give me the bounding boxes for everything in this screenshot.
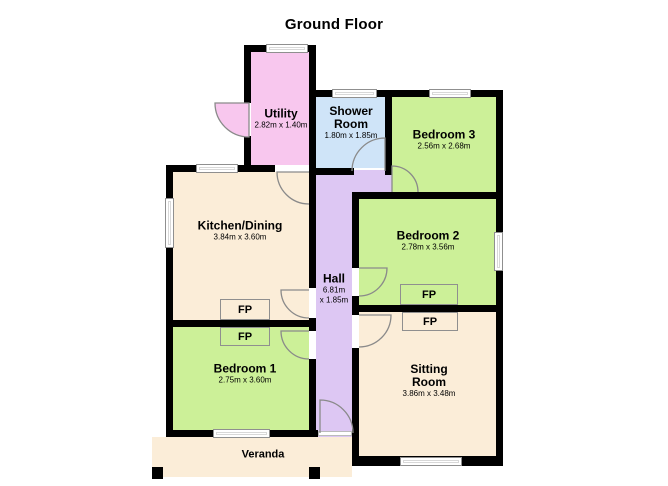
bedroom3-label: Bedroom 3 2.56m x 2.68m xyxy=(413,129,476,152)
shower-room-label: Shower Room 1.80m x 1.85m xyxy=(325,105,378,141)
wall xyxy=(352,305,503,312)
fireplace-bedroom2: FP xyxy=(400,284,458,305)
room-name: Room xyxy=(325,118,378,131)
floor-plan: Ground Floor FP FP FP FP xyxy=(0,0,668,486)
wall xyxy=(496,90,503,466)
room-dims: 6.81m xyxy=(320,286,348,296)
bedroom2-label: Bedroom 2 2.78m x 3.56m xyxy=(397,230,460,253)
window xyxy=(494,232,503,271)
wall xyxy=(309,45,316,288)
wall xyxy=(166,320,316,327)
fireplace-label: FP xyxy=(238,304,252,316)
room-dims: 2.75m x 3.60m xyxy=(214,376,277,386)
fireplace-kitchen: FP xyxy=(220,299,270,320)
plan-title: Ground Floor xyxy=(0,16,668,33)
wall xyxy=(309,168,354,175)
bedroom1-label: Bedroom 1 2.75m x 3.60m xyxy=(214,363,277,386)
utility-label: Utility 2.82m x 1.40m xyxy=(255,108,308,131)
wall xyxy=(385,90,392,175)
wall xyxy=(352,199,359,268)
window xyxy=(429,89,471,98)
room-dims: 3.86m x 3.48m xyxy=(403,389,456,399)
veranda-post xyxy=(152,467,163,479)
room-name: Bedroom 3 xyxy=(413,129,476,142)
room-name: Utility xyxy=(255,108,308,121)
window xyxy=(332,89,377,98)
wall xyxy=(352,192,503,199)
room-name: Room xyxy=(403,376,456,389)
window xyxy=(165,198,174,248)
front-door-threshold xyxy=(318,431,352,436)
fireplace-label: FP xyxy=(423,316,437,328)
window xyxy=(213,429,270,438)
room-name: Bedroom 1 xyxy=(214,363,277,376)
room-dims: 2.78m x 3.56m xyxy=(397,243,460,253)
room-name: Bedroom 2 xyxy=(397,230,460,243)
room-dims: 1.80m x 1.85m xyxy=(325,131,378,141)
wall xyxy=(309,359,316,437)
fireplace-label: FP xyxy=(238,331,252,343)
room-hall xyxy=(316,175,352,437)
room-name: Kitchen/Dining xyxy=(198,220,283,233)
room-name: Veranda xyxy=(242,449,285,462)
veranda-label: Veranda xyxy=(242,449,285,462)
room-dims: 3.84m x 3.60m xyxy=(198,233,283,243)
wall xyxy=(244,45,251,103)
window xyxy=(400,457,462,466)
room-dims: 2.56m x 2.68m xyxy=(413,142,476,152)
room-kitchen-dining xyxy=(173,172,309,320)
wall xyxy=(352,348,359,466)
window xyxy=(266,44,308,53)
room-name: Hall xyxy=(320,273,348,286)
window xyxy=(196,164,238,173)
door-utility-exterior xyxy=(215,103,249,137)
room-dims: x 1.85m xyxy=(320,296,348,306)
room-dims: 2.82m x 1.40m xyxy=(255,121,308,131)
fireplace-bedroom1: FP xyxy=(220,327,270,346)
fireplace-sitting: FP xyxy=(402,312,458,331)
fireplace-label: FP xyxy=(422,289,436,301)
hall-label: Hall 6.81m x 1.85m xyxy=(320,273,348,306)
kitchen-dining-label: Kitchen/Dining 3.84m x 3.60m xyxy=(198,220,283,243)
veranda-post xyxy=(309,467,320,479)
sitting-room-label: Sitting Room 3.86m x 3.48m xyxy=(403,363,456,399)
